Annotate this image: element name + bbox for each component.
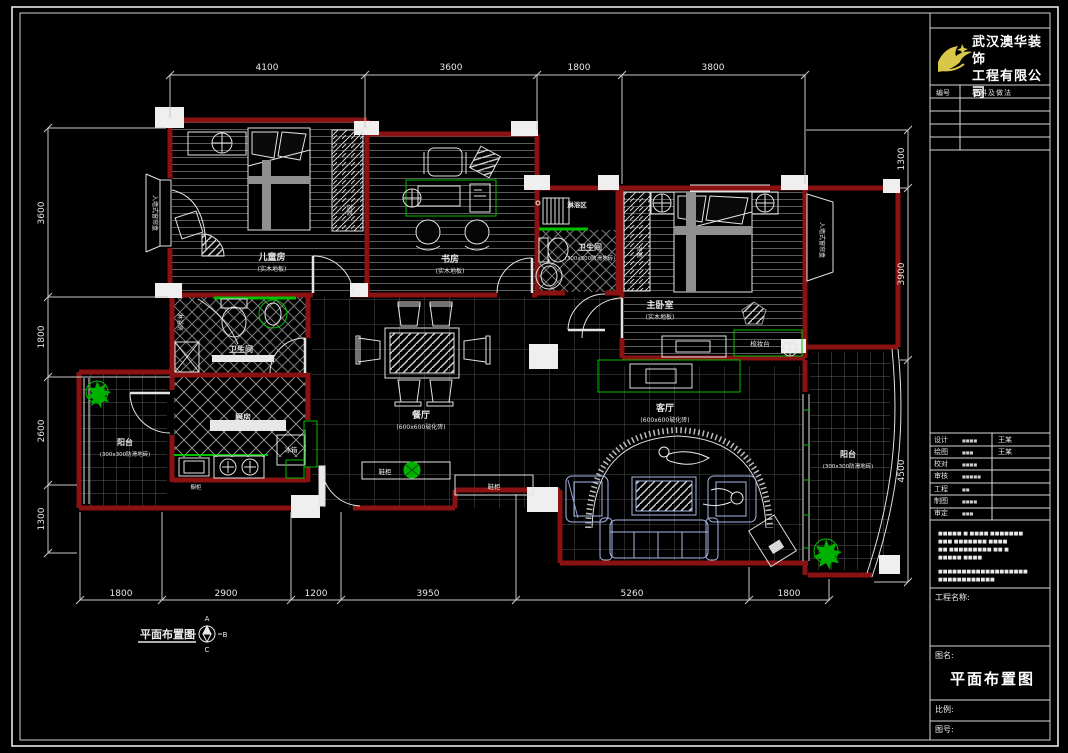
compass-letter-top: A — [205, 615, 210, 623]
sign-name-1: 王某 — [998, 447, 1012, 457]
wardrobe-master — [624, 192, 650, 291]
drawing-name-label: 图名: — [935, 650, 954, 661]
sign-label-3: 审核 — [934, 471, 948, 481]
label-curtain-children: 入墙式窗帘盒 — [151, 195, 159, 231]
note-line-5: ■■■■■■■■■■■■ — [938, 576, 1048, 584]
stool-2 — [465, 220, 489, 244]
sign-value-4: ■■ — [962, 487, 970, 492]
label-fridge: 冰箱 — [285, 445, 299, 454]
bed-master — [674, 192, 752, 292]
dining-table — [385, 328, 459, 378]
dim-bottom-0: 1800 — [110, 589, 133, 599]
room-label-shower: 淋浴区 — [567, 200, 587, 209]
room-label-balcony-right: 阳台 — [840, 449, 856, 459]
note-line-0: ■■■■■ ■ ■■■■ ■■■■■■■ — [938, 530, 1048, 538]
drawing-title: 平面布置图 — [950, 668, 1035, 689]
dim-bottom-3: 3950 — [417, 589, 440, 599]
room-sub-study: (实木地板) — [436, 267, 465, 275]
sign-name-0: 王某 — [998, 435, 1012, 445]
room-sub-balcony-left: (300x300防滑地砖) — [100, 450, 151, 458]
room-label-living: 客厅 — [655, 402, 674, 414]
dim-left-2: 2600 — [37, 419, 47, 442]
compass-letter-left: D — [187, 631, 192, 639]
label-wardrobe-master: 衣柜 — [635, 246, 643, 258]
window-living-right — [803, 394, 809, 561]
cad-viewport[interactable]: 儿童房 (实木地板) 书房 (实木地板) 主卧室 (实木地板) 淋浴区 卫生间 … — [0, 0, 1068, 753]
dim-top-0: 4100 — [256, 63, 279, 73]
dim-top-3: 3800 — [702, 63, 725, 73]
signature-table: 设计 ■■■■ 王某 绘图 ■■■ 王某 校对 ■■■■ 审核 ■■■■■ 工程… — [932, 434, 1050, 519]
compass-letter-right: B — [223, 631, 228, 639]
note-line-1: ■■■ ■■■■■■■ ■■■■ — [938, 538, 1048, 546]
dim-bottom-1: 2900 — [215, 589, 238, 599]
label-shower-room: 淋浴房 — [176, 313, 184, 331]
note-line-2: ■■ ■■■■■■■■■ ■■ ■ — [938, 546, 1048, 554]
note-line-3: ■■■■■ ■■■■ — [938, 554, 1048, 562]
sign-value-6: ■■■ — [962, 511, 973, 516]
room-sub-balcony-right: (300x300防滑地砖) — [823, 462, 874, 470]
dim-left-3: 1300 — [37, 507, 47, 530]
dim-left-0: 3600 — [37, 201, 47, 224]
dim-top-2: 1800 — [568, 63, 591, 73]
project-name-label: 工程名称: — [935, 592, 970, 603]
dim-top-1: 3600 — [440, 63, 463, 73]
materials-col-no: 编号 — [936, 88, 950, 98]
company-line1: 武汉澳华装饰 — [972, 34, 1050, 68]
room-label-dining: 餐厅 — [411, 409, 430, 421]
label-wardrobe-children: 衣柜 — [345, 204, 353, 216]
sign-value-0: ■■■■ — [962, 438, 977, 443]
stool-1 — [416, 220, 440, 244]
dim-bottom-5: 1800 — [778, 589, 801, 599]
room-label-master: 主卧室 — [646, 299, 673, 311]
dim-right-2: 4500 — [897, 459, 907, 482]
dim-left-1: 1800 — [37, 325, 47, 348]
room-sub-children: (实木地板) — [258, 265, 287, 273]
bathmat — [212, 355, 274, 362]
sign-label-5: 制图 — [934, 496, 948, 506]
room-sub-living: (600x600玻化砖) — [640, 416, 689, 424]
label-shoe-cabinet-1: 鞋柜 — [379, 467, 393, 476]
room-label-balcony-left: 阳台 — [117, 437, 133, 447]
sign-value-5: ■■■■ — [962, 499, 977, 504]
compass-letter-bottom: C — [205, 646, 210, 654]
room-label-study: 书房 — [441, 253, 459, 265]
titleblock-notes: ■■■■■ ■ ■■■■ ■■■■■■■ ■■■ ■■■■■■■ ■■■■ ■■… — [938, 530, 1048, 584]
note-line-4: ■■■■■■■■■■■■■■■■■■■ — [938, 568, 1048, 576]
dim-bottom-2: 1200 — [305, 589, 328, 599]
room-label-kitchen: 厨房 — [235, 412, 251, 422]
dim-right-0: 1300 — [897, 147, 907, 170]
sign-label-6: 审定 — [934, 508, 948, 518]
room-label-bath2: 卫生间 — [229, 344, 253, 354]
company-logo-icon — [938, 44, 972, 72]
room-label-children: 儿童房 — [257, 251, 285, 263]
label-shoe-cabinet-2: 鞋柜 — [488, 482, 502, 491]
coffee-table — [632, 477, 696, 515]
room-label-bath1: 卫生间 — [578, 242, 602, 252]
caption-group: 平面布置图 A B C D — [138, 615, 228, 654]
scale-label: 比例: — [935, 704, 954, 715]
sign-value-2: ■■■■ — [962, 462, 977, 467]
sign-value-3: ■■■■■ — [962, 474, 981, 479]
label-dresser: 梳妆台 — [750, 339, 770, 348]
stove — [214, 456, 264, 478]
bed-children — [248, 128, 310, 230]
dim-right-1: 3900 — [897, 262, 907, 285]
sink-kitchen — [179, 458, 209, 476]
sheet-number-label: 图号: — [935, 724, 954, 735]
orientation-symbol — [192, 626, 222, 642]
materials-col-desc: 材料及做法 — [972, 88, 1012, 98]
label-curtain-master: 入墙式窗帘盒 — [818, 222, 826, 258]
room-sub-bath1: (300x300防滑地砖) — [565, 254, 616, 262]
sign-value-1: ■■■ — [962, 450, 973, 455]
plant-entry — [404, 462, 420, 478]
sign-label-2: 校对 — [934, 459, 948, 469]
blind-panel — [536, 198, 569, 224]
sign-label-4: 工程 — [934, 484, 948, 494]
room-sub-dining: (600x600玻化砖) — [396, 423, 445, 431]
label-counter: 橱柜 — [190, 483, 202, 491]
sign-label-1: 绘图 — [934, 447, 948, 457]
room-sub-master: (实木地板) — [646, 313, 675, 321]
floorplan-drawing: 儿童房 (实木地板) 书房 (实木地板) 主卧室 (实木地板) 淋浴区 卫生间 … — [0, 0, 1068, 753]
kitchen-corner-unit — [286, 460, 304, 478]
dim-bottom-4: 5260 — [621, 589, 644, 599]
titleblock-rules — [930, 13, 1050, 740]
sign-label-0: 设计 — [934, 435, 948, 445]
